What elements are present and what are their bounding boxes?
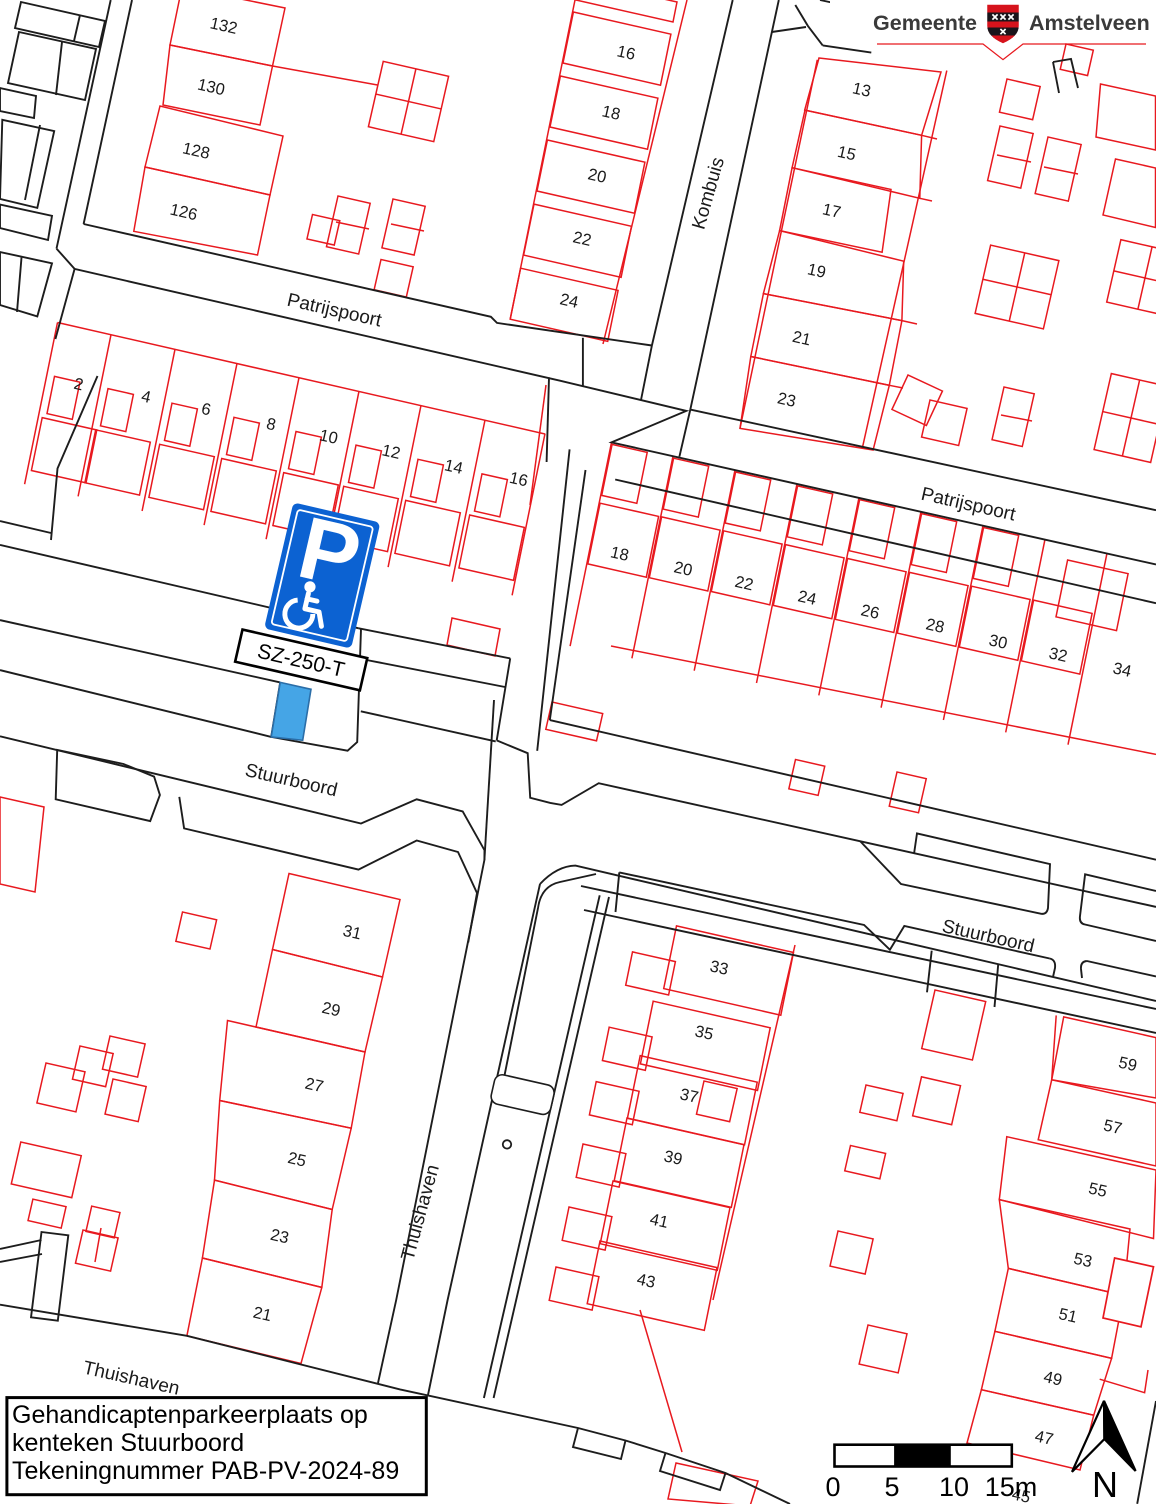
svg-text:5: 5 [884, 1472, 899, 1502]
svg-text:Tekeningnummer PAB-PV-2024-89: Tekeningnummer PAB-PV-2024-89 [12, 1457, 399, 1485]
svg-text:0: 0 [825, 1472, 840, 1502]
svg-text:Gemeente: Gemeente [873, 11, 977, 35]
svg-text:kenteken Stuurboord: kenteken Stuurboord [12, 1429, 244, 1457]
svg-text:Amstelveen: Amstelveen [1029, 11, 1150, 35]
svg-text:10: 10 [939, 1472, 969, 1502]
svg-text:N: N [1092, 1464, 1118, 1504]
svg-text:Gehandicaptenparkeerplaats op: Gehandicaptenparkeerplaats op [12, 1401, 368, 1429]
svg-text:15m: 15m [985, 1472, 1038, 1502]
